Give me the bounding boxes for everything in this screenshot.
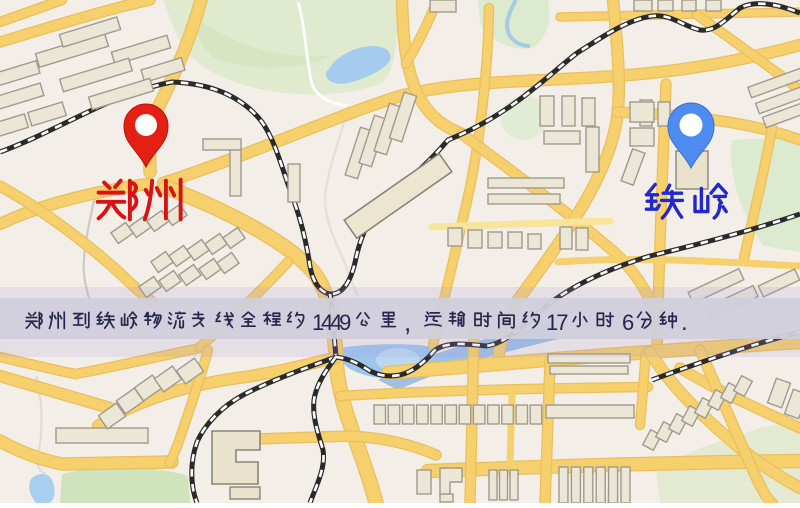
svg-text:.: . xyxy=(681,309,688,336)
svg-text:6: 6 xyxy=(622,310,634,335)
svg-text:,: , xyxy=(404,307,411,337)
svg-text:17: 17 xyxy=(546,310,568,335)
svg-text:1449: 1449 xyxy=(312,310,351,335)
